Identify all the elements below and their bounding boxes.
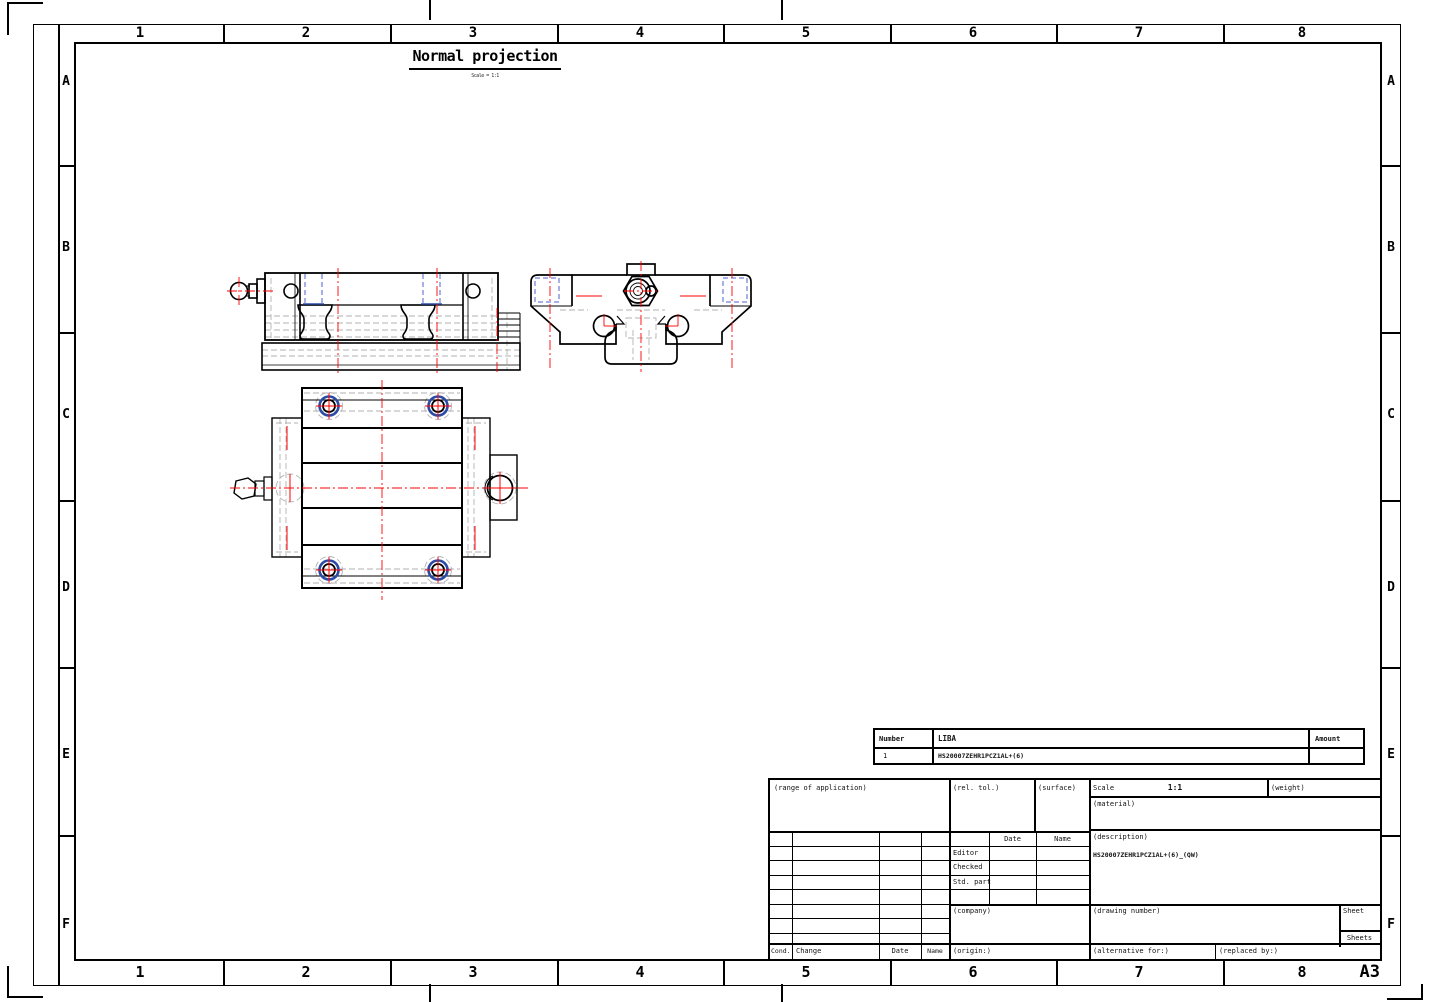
grid-col-label: 4 (620, 963, 660, 981)
top-view (228, 378, 530, 602)
field-sheets: Sheets (1339, 934, 1380, 942)
grid-col-label: 7 (1119, 25, 1159, 41)
end-view (528, 260, 754, 374)
outline (231, 273, 521, 370)
view-title-scale: Scale = 1:1 (400, 73, 570, 79)
grid-col-label: 8 (1282, 963, 1322, 981)
fold-mark-bottom-1 (429, 984, 431, 1002)
centerlines (230, 380, 528, 600)
grid-tick (1056, 961, 1058, 986)
grid-tick (390, 24, 392, 42)
grid-col-label: 5 (786, 963, 826, 981)
grid-tick (1382, 332, 1401, 334)
fold-mark-top-2 (781, 0, 783, 20)
field-scale-label: Scale (1093, 784, 1114, 792)
grid-tick (1223, 961, 1225, 986)
grid-tick (723, 24, 725, 42)
parts-list-row-number: 1 (883, 752, 887, 760)
trim-mark-bottom-left-v (7, 966, 9, 998)
rev-name-header: Name (1036, 835, 1089, 843)
parts-list-row-name: HS20007ZEHR1PCZ1AL+(6) (938, 752, 1024, 760)
grid-tick (223, 961, 225, 986)
grid-row-label: D (1383, 580, 1399, 595)
grid-row-label: E (58, 747, 74, 762)
grid-tick (1382, 165, 1401, 167)
field-replaced-by: (replaced by:) (1219, 947, 1278, 955)
drawing-sheet: 1 2 3 4 5 6 7 8 1 2 3 4 5 6 7 8 A B C D … (0, 0, 1429, 1002)
grid-tick (723, 961, 725, 986)
grid-tick (890, 24, 892, 42)
parts-list-header-number: Number (879, 735, 904, 743)
trim-mark-bottom-left (7, 996, 43, 998)
grid-row-label: E (1383, 747, 1399, 762)
grid-col-label: 1 (120, 963, 160, 981)
field-company: (company) (953, 907, 991, 915)
grid-tick (557, 24, 559, 42)
grid-col-label: 6 (953, 25, 993, 41)
field-rel-tol: (rel. tol.) (953, 784, 999, 792)
field-cond: Cond. (771, 947, 791, 955)
field-description-label: (description) (1093, 833, 1148, 841)
filing-margin-line (58, 24, 60, 986)
grid-row-label: F (1383, 917, 1399, 932)
field-range-of-application: (range of application) (774, 784, 867, 792)
grid-tick (1223, 24, 1225, 42)
grid-tick (58, 500, 74, 502)
fold-mark-top-1 (429, 0, 431, 20)
parts-list-header-name: LIBA (938, 735, 956, 743)
grid-col-label: 3 (453, 25, 493, 41)
grid-tick (58, 332, 74, 334)
centerlines (550, 261, 732, 372)
grid-col-label: 4 (620, 25, 660, 41)
grid-row-label: A (1383, 74, 1399, 89)
grid-col-label: 1 (120, 25, 160, 41)
grid-tick (223, 24, 225, 42)
trim-mark-bottom-right-v (1421, 984, 1423, 1000)
grid-tick (1382, 667, 1401, 669)
field-drawing-number: (drawing number) (1093, 907, 1160, 915)
grid-tick (1382, 835, 1401, 837)
grid-row-label: D (58, 580, 74, 595)
view-title-text: Normal projection (409, 47, 560, 70)
grid-row-label: F (58, 917, 74, 932)
parts-list: Number LIBA Amount 1 HS20007ZEHR1PCZ1AL+… (873, 728, 1365, 765)
grid-col-label: 2 (286, 25, 326, 41)
field-weight: (weight) (1271, 784, 1305, 792)
field-name: Name (921, 947, 949, 955)
view-title: Normal projection Scale = 1:1 (400, 46, 570, 79)
side-view (225, 266, 525, 378)
grid-tick (1382, 500, 1401, 502)
parts-list-header-amount: Amount (1315, 735, 1340, 743)
grid-col-label: 7 (1119, 963, 1159, 981)
grid-row-label: B (1383, 240, 1399, 255)
grid-row-label: C (1383, 407, 1399, 422)
rev-date-header: Date (989, 835, 1036, 843)
field-change: Change (796, 947, 821, 955)
centerlines (227, 268, 497, 375)
field-date: Date (879, 947, 921, 955)
field-material: (material) (1093, 800, 1135, 808)
grid-col-label: 5 (786, 25, 826, 41)
grease-nipple (234, 477, 272, 500)
trim-mark-top-left (7, 2, 43, 4)
trim-mark-bottom-right (1387, 998, 1423, 1000)
field-origin: (origin:) (953, 947, 991, 955)
grid-tick (58, 165, 74, 167)
field-scale-value: 1:1 (1135, 784, 1215, 792)
trim-mark-top-left-v (7, 2, 9, 35)
sheet-format-label: A3 (1320, 962, 1380, 982)
title-block: (range of application) (rel. tol.) (surf… (768, 778, 1382, 961)
grid-row-label: C (58, 407, 74, 422)
field-alternative-for: (alternative for:) (1093, 947, 1169, 955)
grid-tick (1056, 24, 1058, 42)
grid-tick (58, 835, 74, 837)
field-description-value: HS20007ZEHR1PCZ1AL+(6)_(QW) (1093, 851, 1199, 859)
grid-tick (890, 961, 892, 986)
field-editor: Editor (953, 849, 978, 857)
grid-tick (390, 961, 392, 986)
grid-col-label: 8 (1282, 25, 1322, 41)
grid-tick (58, 667, 74, 669)
grid-col-label: 6 (953, 963, 993, 981)
hole-hidden-lines (305, 274, 440, 304)
grid-row-label: B (58, 240, 74, 255)
field-checked: Checked (953, 863, 983, 871)
field-std-part: Std. part (953, 878, 991, 886)
field-surface: (surface) (1038, 784, 1076, 792)
field-sheet: Sheet (1343, 907, 1364, 915)
grid-col-label: 3 (453, 963, 493, 981)
grid-row-label: A (58, 74, 74, 89)
grid-col-label: 2 (286, 963, 326, 981)
fold-mark-bottom-2 (781, 984, 783, 1002)
grid-tick (557, 961, 559, 986)
